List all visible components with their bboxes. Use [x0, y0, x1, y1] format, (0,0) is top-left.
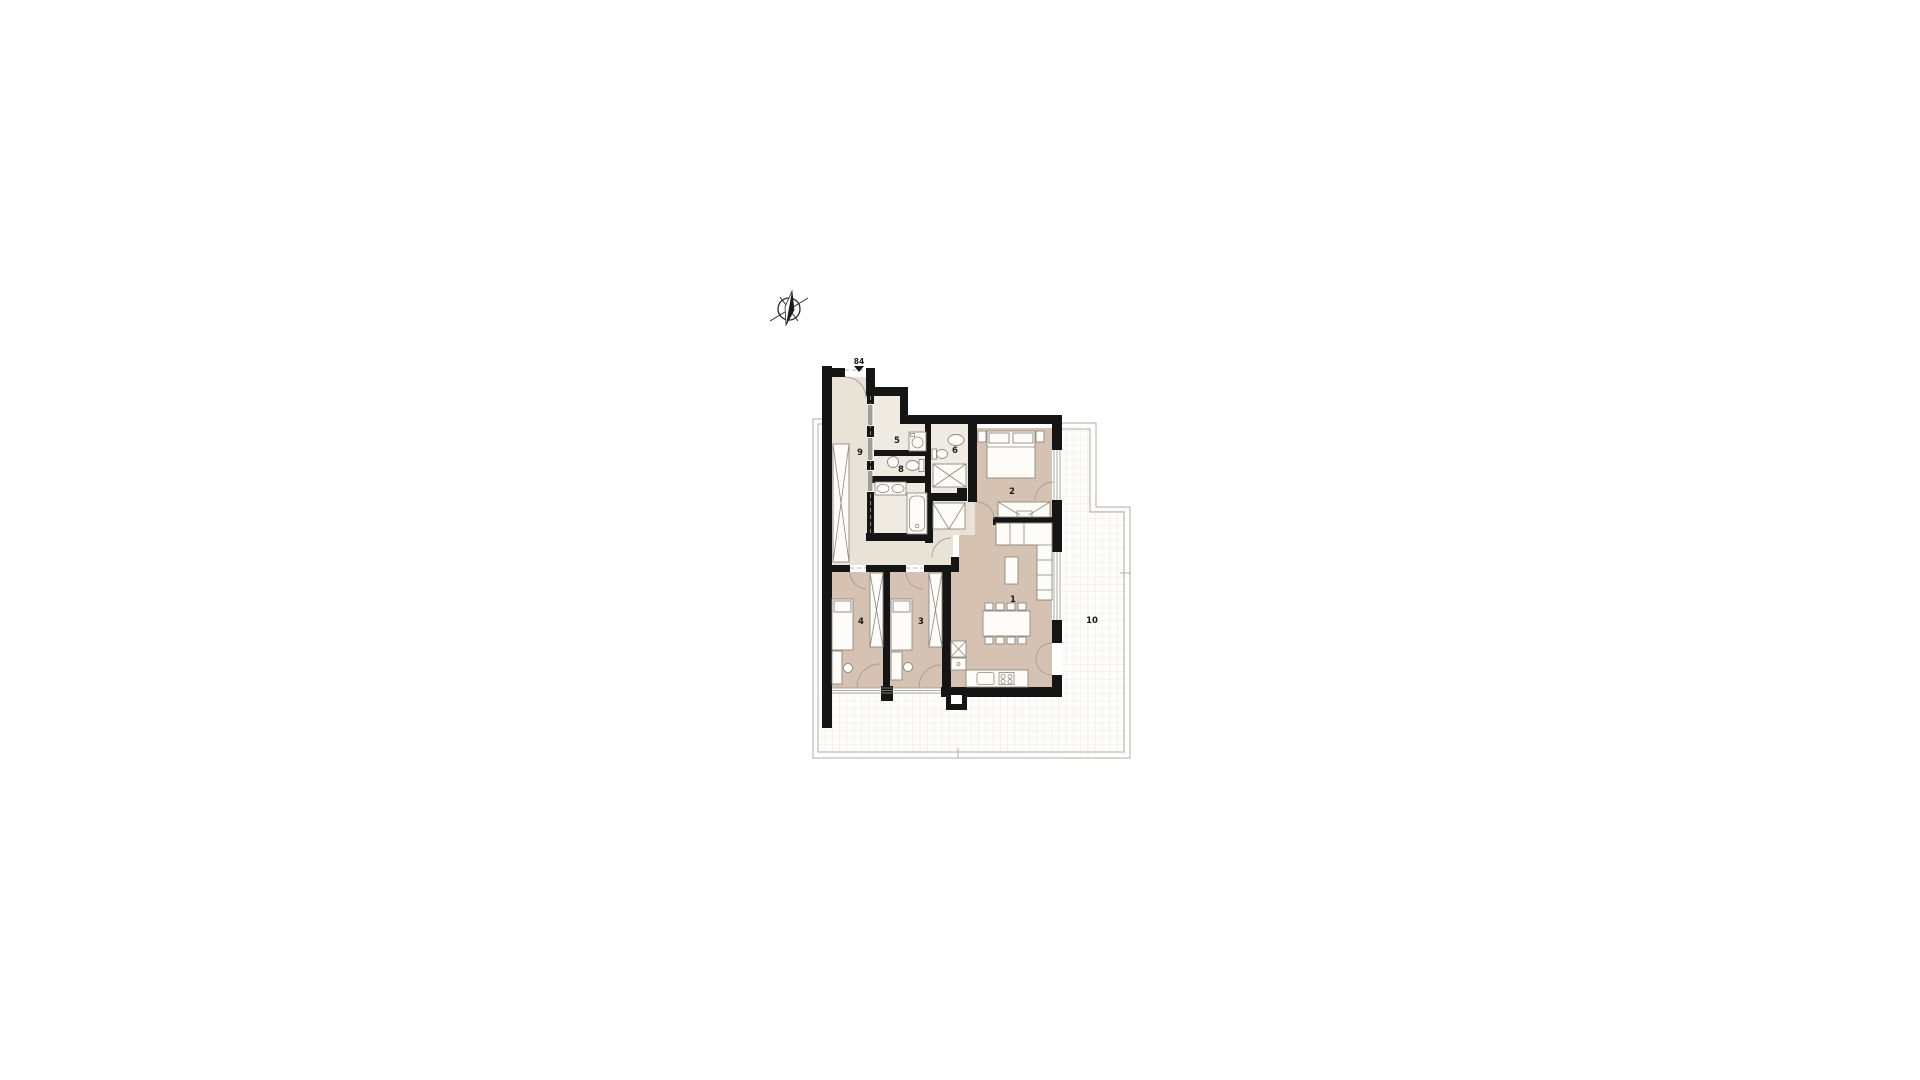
wc-sink [888, 457, 899, 468]
label-wc: 8 [898, 465, 904, 475]
wall-hall-rooms-1 [832, 565, 850, 572]
dining-chair [985, 637, 993, 644]
wall-top-left [822, 368, 845, 377]
wall-room3-kitchen [942, 572, 951, 687]
label-shower-room: 6 [952, 446, 958, 456]
terrace-grid-bottom [819, 692, 1062, 754]
pillow-3 [893, 601, 910, 612]
wall-hall-rooms-2 [866, 565, 906, 572]
dining-chair [1018, 637, 1026, 644]
terrace-grid-upper-right [1062, 427, 1092, 511]
wall-right-1 [1052, 415, 1062, 450]
nightstand-left [978, 431, 986, 442]
label-bedroom-left: 4 [858, 617, 864, 627]
master-pillow-2 [1013, 433, 1033, 443]
label-hallway: 9 [857, 448, 863, 458]
north-compass-icon [770, 291, 808, 325]
floor-plan-drawing: 9 5 8 6 2 4 3 1 10 84 [0, 0, 1920, 1080]
dining-chair [1018, 603, 1026, 610]
wc-toilet-tank [919, 460, 924, 472]
corridor-closet [933, 503, 965, 529]
kitchen-counter [966, 670, 1028, 687]
dining-chair [1007, 637, 1015, 644]
desk-4 [832, 651, 842, 684]
master-wardrobe [998, 502, 1050, 517]
shower-room-toilet-tank [932, 449, 937, 459]
label-master-bedroom: 2 [1009, 487, 1015, 497]
wall-corridor-pier [957, 488, 967, 501]
entrance-number: 84 [854, 357, 864, 366]
floor-plan-page: 9 5 8 6 2 4 3 1 10 84 [0, 0, 1920, 1080]
label-terrace: 10 [1086, 616, 1098, 626]
wall-hall-living-jamb [951, 557, 959, 572]
wall-right-3 [1052, 620, 1062, 643]
desk-3 [891, 652, 902, 680]
dining-table [983, 611, 1030, 636]
wall-hall-chunk-4 [867, 492, 874, 535]
wall-left [822, 366, 832, 728]
terrace-grid-lower-right [1062, 509, 1126, 755]
wall-top-right [900, 415, 1062, 424]
master-pillow-1 [989, 433, 1009, 443]
label-living-room: 1 [1010, 595, 1016, 605]
chair-3 [904, 663, 913, 672]
wall-right-2 [1052, 500, 1062, 552]
chair-4 [844, 664, 853, 673]
nightstand-right [1036, 431, 1044, 442]
wall-master-left [968, 424, 977, 502]
wc-toilet-bowl [906, 461, 919, 471]
label-bedroom-middle: 3 [918, 617, 924, 627]
hallway-wardrobe [833, 444, 849, 562]
bathroom-vanity [875, 482, 906, 495]
pocket-door-1 [868, 405, 873, 425]
wall-rooms-3-4 [883, 572, 890, 687]
label-laundry: 5 [894, 436, 900, 446]
dining-chair [985, 603, 993, 610]
pillow-4 [834, 601, 851, 612]
dining-chair [996, 637, 1004, 644]
coffee-table [1005, 557, 1018, 584]
shower-room-toilet-bowl [937, 450, 948, 459]
kitchen-cabinet [951, 658, 966, 670]
chimney-flue [951, 695, 962, 704]
shower-room-sink [948, 435, 964, 446]
entrance-opening [845, 367, 866, 377]
dining-chair [996, 603, 1004, 610]
washing-machine [909, 432, 926, 451]
